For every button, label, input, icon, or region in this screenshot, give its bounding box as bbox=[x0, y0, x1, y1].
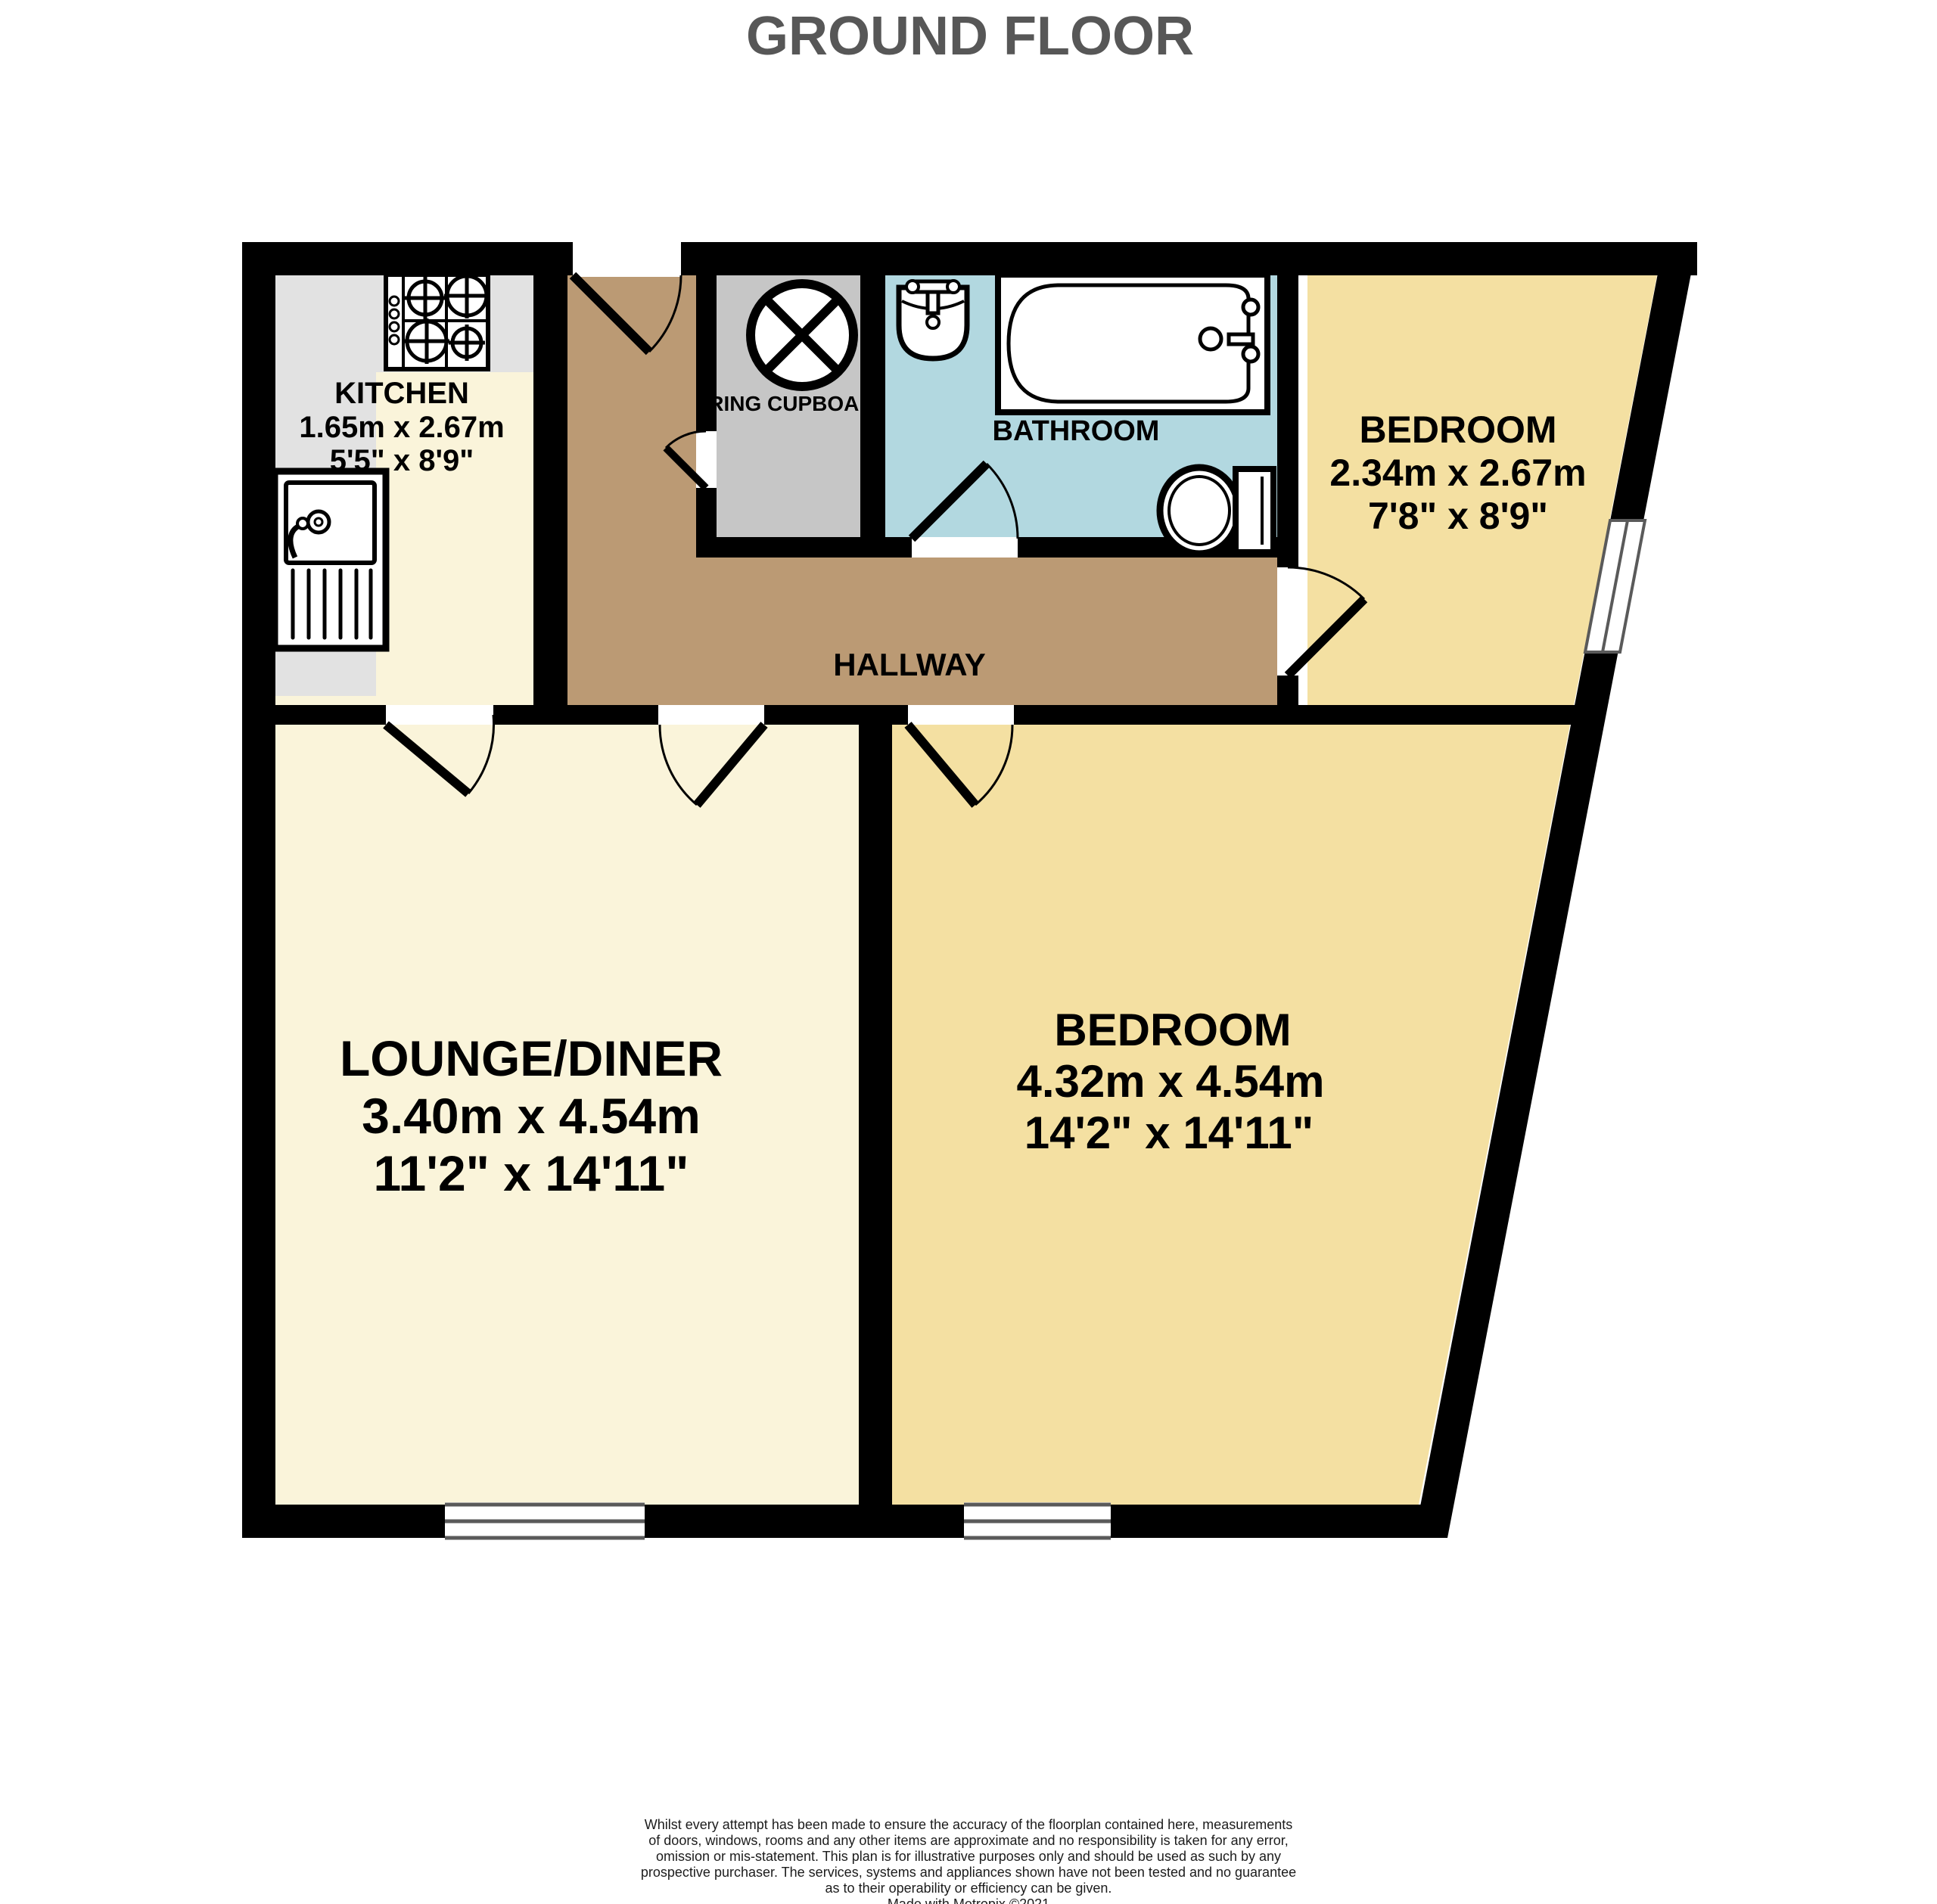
bedroom-main-size-imperial: 14'2" x 14'11" bbox=[1024, 1107, 1314, 1158]
wall-lounge-bedroom bbox=[859, 705, 892, 1505]
disclaimer-line-3: omission or mis-statement. This plan is … bbox=[656, 1849, 1281, 1864]
bath-icon bbox=[998, 275, 1267, 412]
airing-cupboard-name: AIRING CUPBOARD bbox=[687, 392, 890, 415]
wall-mid-1 bbox=[242, 705, 386, 725]
bedroom-main-label: BEDROOM 4.32m x 4.54m 14'2" x 14'11" bbox=[1017, 1005, 1325, 1158]
hob-icon bbox=[386, 273, 488, 369]
wall-cupboard-bottom bbox=[696, 537, 912, 558]
wall-bottom bbox=[242, 1505, 1434, 1538]
lounge-label: LOUNGE/DINER 3.40m x 4.54m 11'2" x 14'11… bbox=[340, 1030, 723, 1201]
wall-cupboard-left-upper bbox=[696, 275, 717, 431]
bedroom-top-name: BEDROOM bbox=[1359, 408, 1556, 451]
kitchen-size-metric: 1.65m x 2.67m bbox=[299, 411, 504, 444]
lounge-size-metric: 3.40m x 4.54m bbox=[362, 1088, 701, 1144]
disclaimer-line-1: Whilst every attempt has been made to en… bbox=[645, 1817, 1292, 1832]
bedroom-top-size-metric: 2.34m x 2.67m bbox=[1329, 452, 1586, 494]
wall-left bbox=[242, 242, 275, 1538]
disclaimer-line-4: prospective purchaser. The services, sys… bbox=[641, 1865, 1296, 1880]
bedroom-top-label: BEDROOM 2.34m x 2.67m 7'8" x 8'9" bbox=[1329, 408, 1586, 537]
bedroom-main-window bbox=[964, 1502, 1111, 1540]
page-title: GROUND FLOOR bbox=[746, 6, 1194, 67]
disclaimer-line-5: as to their operability or efficiency ca… bbox=[825, 1881, 1112, 1896]
wall-cupboard-right bbox=[860, 275, 885, 537]
disclaimer: Whilst every attempt has been made to en… bbox=[641, 1817, 1296, 1904]
bathroom-name: BATHROOM bbox=[993, 415, 1160, 447]
disclaimer-line-6: Made with Metropix ©2021 bbox=[888, 1896, 1049, 1904]
bedroom-top-size-imperial: 7'8" x 8'9" bbox=[1368, 495, 1548, 537]
floorplan-page: GROUND FLOOR bbox=[0, 0, 1937, 1904]
disclaimer-line-2: of doors, windows, rooms and any other i… bbox=[648, 1833, 1288, 1848]
wall-cupboard-left-lower bbox=[696, 488, 717, 537]
kitchen-size-imperial: 5'5" x 8'9" bbox=[330, 444, 474, 477]
wall-kitchen-right bbox=[533, 242, 567, 705]
lounge-name: LOUNGE/DINER bbox=[340, 1030, 723, 1086]
bedroom-main-size-metric: 4.32m x 4.54m bbox=[1017, 1056, 1325, 1107]
lounge-size-imperial: 11'2" x 14'11" bbox=[373, 1145, 689, 1201]
wash-basin-icon bbox=[899, 281, 967, 359]
lounge-window bbox=[445, 1502, 645, 1540]
floorplan-drawing: GROUND FLOOR bbox=[0, 0, 1937, 1904]
wall-bedroom-top-left-upper bbox=[1277, 275, 1298, 567]
kitchen-name: KITCHEN bbox=[334, 377, 469, 410]
front-door-opening bbox=[573, 241, 681, 277]
wall-top bbox=[242, 242, 1697, 275]
kitchen-sink-icon bbox=[275, 471, 386, 648]
hot-water-cylinder-icon bbox=[751, 284, 853, 387]
toilet-icon bbox=[1160, 467, 1273, 554]
wall-mid-2 bbox=[493, 705, 658, 725]
bedroom-main-name: BEDROOM bbox=[1054, 1005, 1291, 1055]
hallway-name: HALLWAY bbox=[833, 647, 985, 682]
wall-bedroom-top-left-lower bbox=[1277, 676, 1298, 725]
